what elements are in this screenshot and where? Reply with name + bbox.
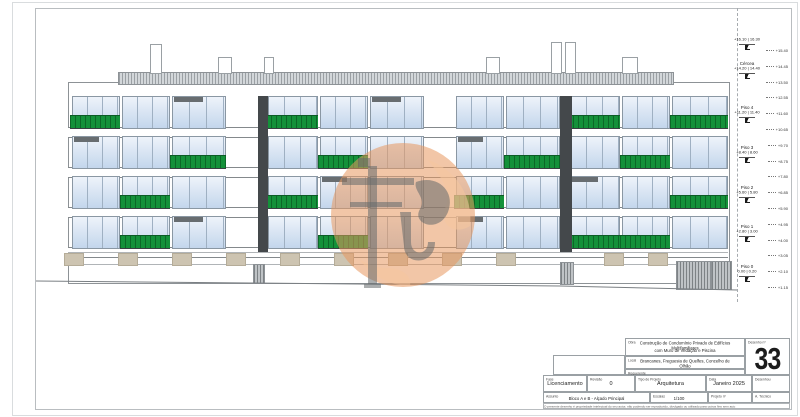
level-value: +8.40 | 8.60: [726, 151, 767, 155]
level-symbol-icon: [745, 277, 750, 282]
tick-value: +11.60: [776, 111, 788, 116]
side-level-tick: +6.85: [756, 190, 788, 195]
tick-dash: [768, 192, 776, 193]
escalas-value: 1/100: [655, 397, 703, 402]
side-level-tick: +11.60: [756, 111, 788, 116]
side-level-tick: +8.75: [756, 159, 788, 164]
fase-value: Licenciamento: [544, 381, 586, 387]
projeto-num-cell: Projeto nº: [708, 392, 752, 403]
tick-value: +14.45: [776, 64, 788, 69]
level-symbol-icon: [745, 198, 750, 203]
desenhou-label: Desenhou: [755, 377, 771, 381]
escalas-cell: Escalas 1/100: [650, 392, 708, 403]
level-symbol-icon: [745, 118, 750, 123]
tick-value: +9.70: [778, 143, 788, 148]
tick-value: +4.00: [778, 238, 788, 243]
side-level-tick: +14.45: [756, 64, 788, 69]
side-level-tick: +4.95: [756, 222, 788, 227]
level-symbol-icon: [745, 158, 750, 163]
tick-value: +1.15: [778, 285, 788, 290]
obra-value-line2: com Muro de Vedação e Piscina: [635, 349, 735, 354]
obra-cell: Obra Construção de Condomínio Privado de…: [625, 338, 745, 356]
tick-value: +2.10: [778, 269, 788, 274]
tick-dash: [766, 82, 774, 83]
desenhou-cell: Desenhou: [752, 375, 790, 392]
drawing-number-cell: Desenho nº 33: [745, 338, 790, 375]
tecnico-cell: A. Técnico: [752, 392, 790, 403]
tipo-projeto-value: Arquitetura: [636, 381, 705, 387]
tick-dash: [768, 271, 776, 272]
assunto-value: Bloco A e B - Alçado Principal: [552, 397, 641, 402]
level-value: +2.80 | 3.00: [726, 230, 767, 234]
title-block-logo-cell: [553, 355, 625, 375]
tick-dash: [768, 255, 776, 256]
tick-value: +15.40: [776, 48, 788, 53]
tick-value: +7.80: [778, 174, 788, 179]
revisao-cell: Revisão 0: [587, 375, 635, 392]
disclaimer-strip: O presente desenho é propriedade intelec…: [543, 403, 790, 409]
tick-dash: [768, 161, 776, 162]
projeto-num-label: Projeto nº: [711, 394, 726, 398]
drawing-sheet: +16.10 | 16.30Cércea+14.20 | 14.40Piso 4…: [0, 0, 800, 417]
side-level-tick: +1.15: [756, 285, 788, 290]
side-level-tick: +12.55: [756, 95, 788, 100]
tick-value: +3.05: [778, 253, 788, 258]
drawing-number: 33: [750, 341, 784, 377]
side-level-tick: +3.05: [756, 253, 788, 258]
revisao-value: 0: [588, 381, 634, 387]
disclaimer-text: O presente desenho é propriedade intelec…: [544, 405, 735, 409]
tick-dash: [766, 97, 774, 98]
tipo-projeto-cell: Tipo de Projeto Arquitetura: [635, 375, 706, 392]
tick-value: +4.95: [778, 222, 788, 227]
tick-value: +8.75: [778, 159, 788, 164]
side-level-tick: +13.50: [756, 80, 788, 85]
tick-value: +12.55: [776, 95, 788, 100]
tick-value: +10.65: [776, 127, 788, 132]
level-symbol-icon: [745, 45, 750, 50]
fase-cell: Fase Licenciamento: [543, 375, 587, 392]
tick-dash: [768, 224, 776, 225]
side-level-tick: +10.65: [756, 127, 788, 132]
tick-dash: [766, 113, 774, 114]
tick-dash: [768, 145, 776, 146]
tick-dash: [766, 129, 774, 130]
assunto-cell: Assunto Bloco A e B - Alçado Principal: [543, 392, 650, 403]
tecnico-label: A. Técnico: [755, 394, 771, 398]
tick-dash: [768, 240, 776, 241]
tick-dash: [768, 287, 776, 288]
local-value: Brancanes, Freguesia de Quelfes, Concelh…: [635, 359, 735, 369]
side-level-tick: +4.00: [756, 238, 788, 243]
side-level-tick: +7.80: [756, 174, 788, 179]
tick-dash: [766, 50, 774, 51]
tick-dash: [768, 176, 776, 177]
side-level-tick: +15.40: [756, 48, 788, 53]
tick-dash: [766, 66, 774, 67]
tick-value: +6.85: [778, 190, 788, 195]
side-level-tick: +2.10: [756, 269, 788, 274]
tick-value: +13.50: [776, 80, 788, 85]
data-cell: Data Janeiro 2025: [706, 375, 752, 392]
tick-value: +5.90: [778, 206, 788, 211]
side-level-tick: +5.90: [756, 206, 788, 211]
side-level-tick: +9.70: [756, 143, 788, 148]
data-value: Janeiro 2025: [707, 381, 751, 387]
level-symbol-icon: [745, 74, 750, 79]
level-value: +16.10 | 16.30: [726, 38, 767, 42]
tick-dash: [768, 208, 776, 209]
local-cell: Local Brancanes, Freguesia de Quelfes, C…: [625, 356, 745, 369]
company-logo-watermark: [330, 142, 476, 288]
level-symbol-icon: [745, 237, 750, 242]
